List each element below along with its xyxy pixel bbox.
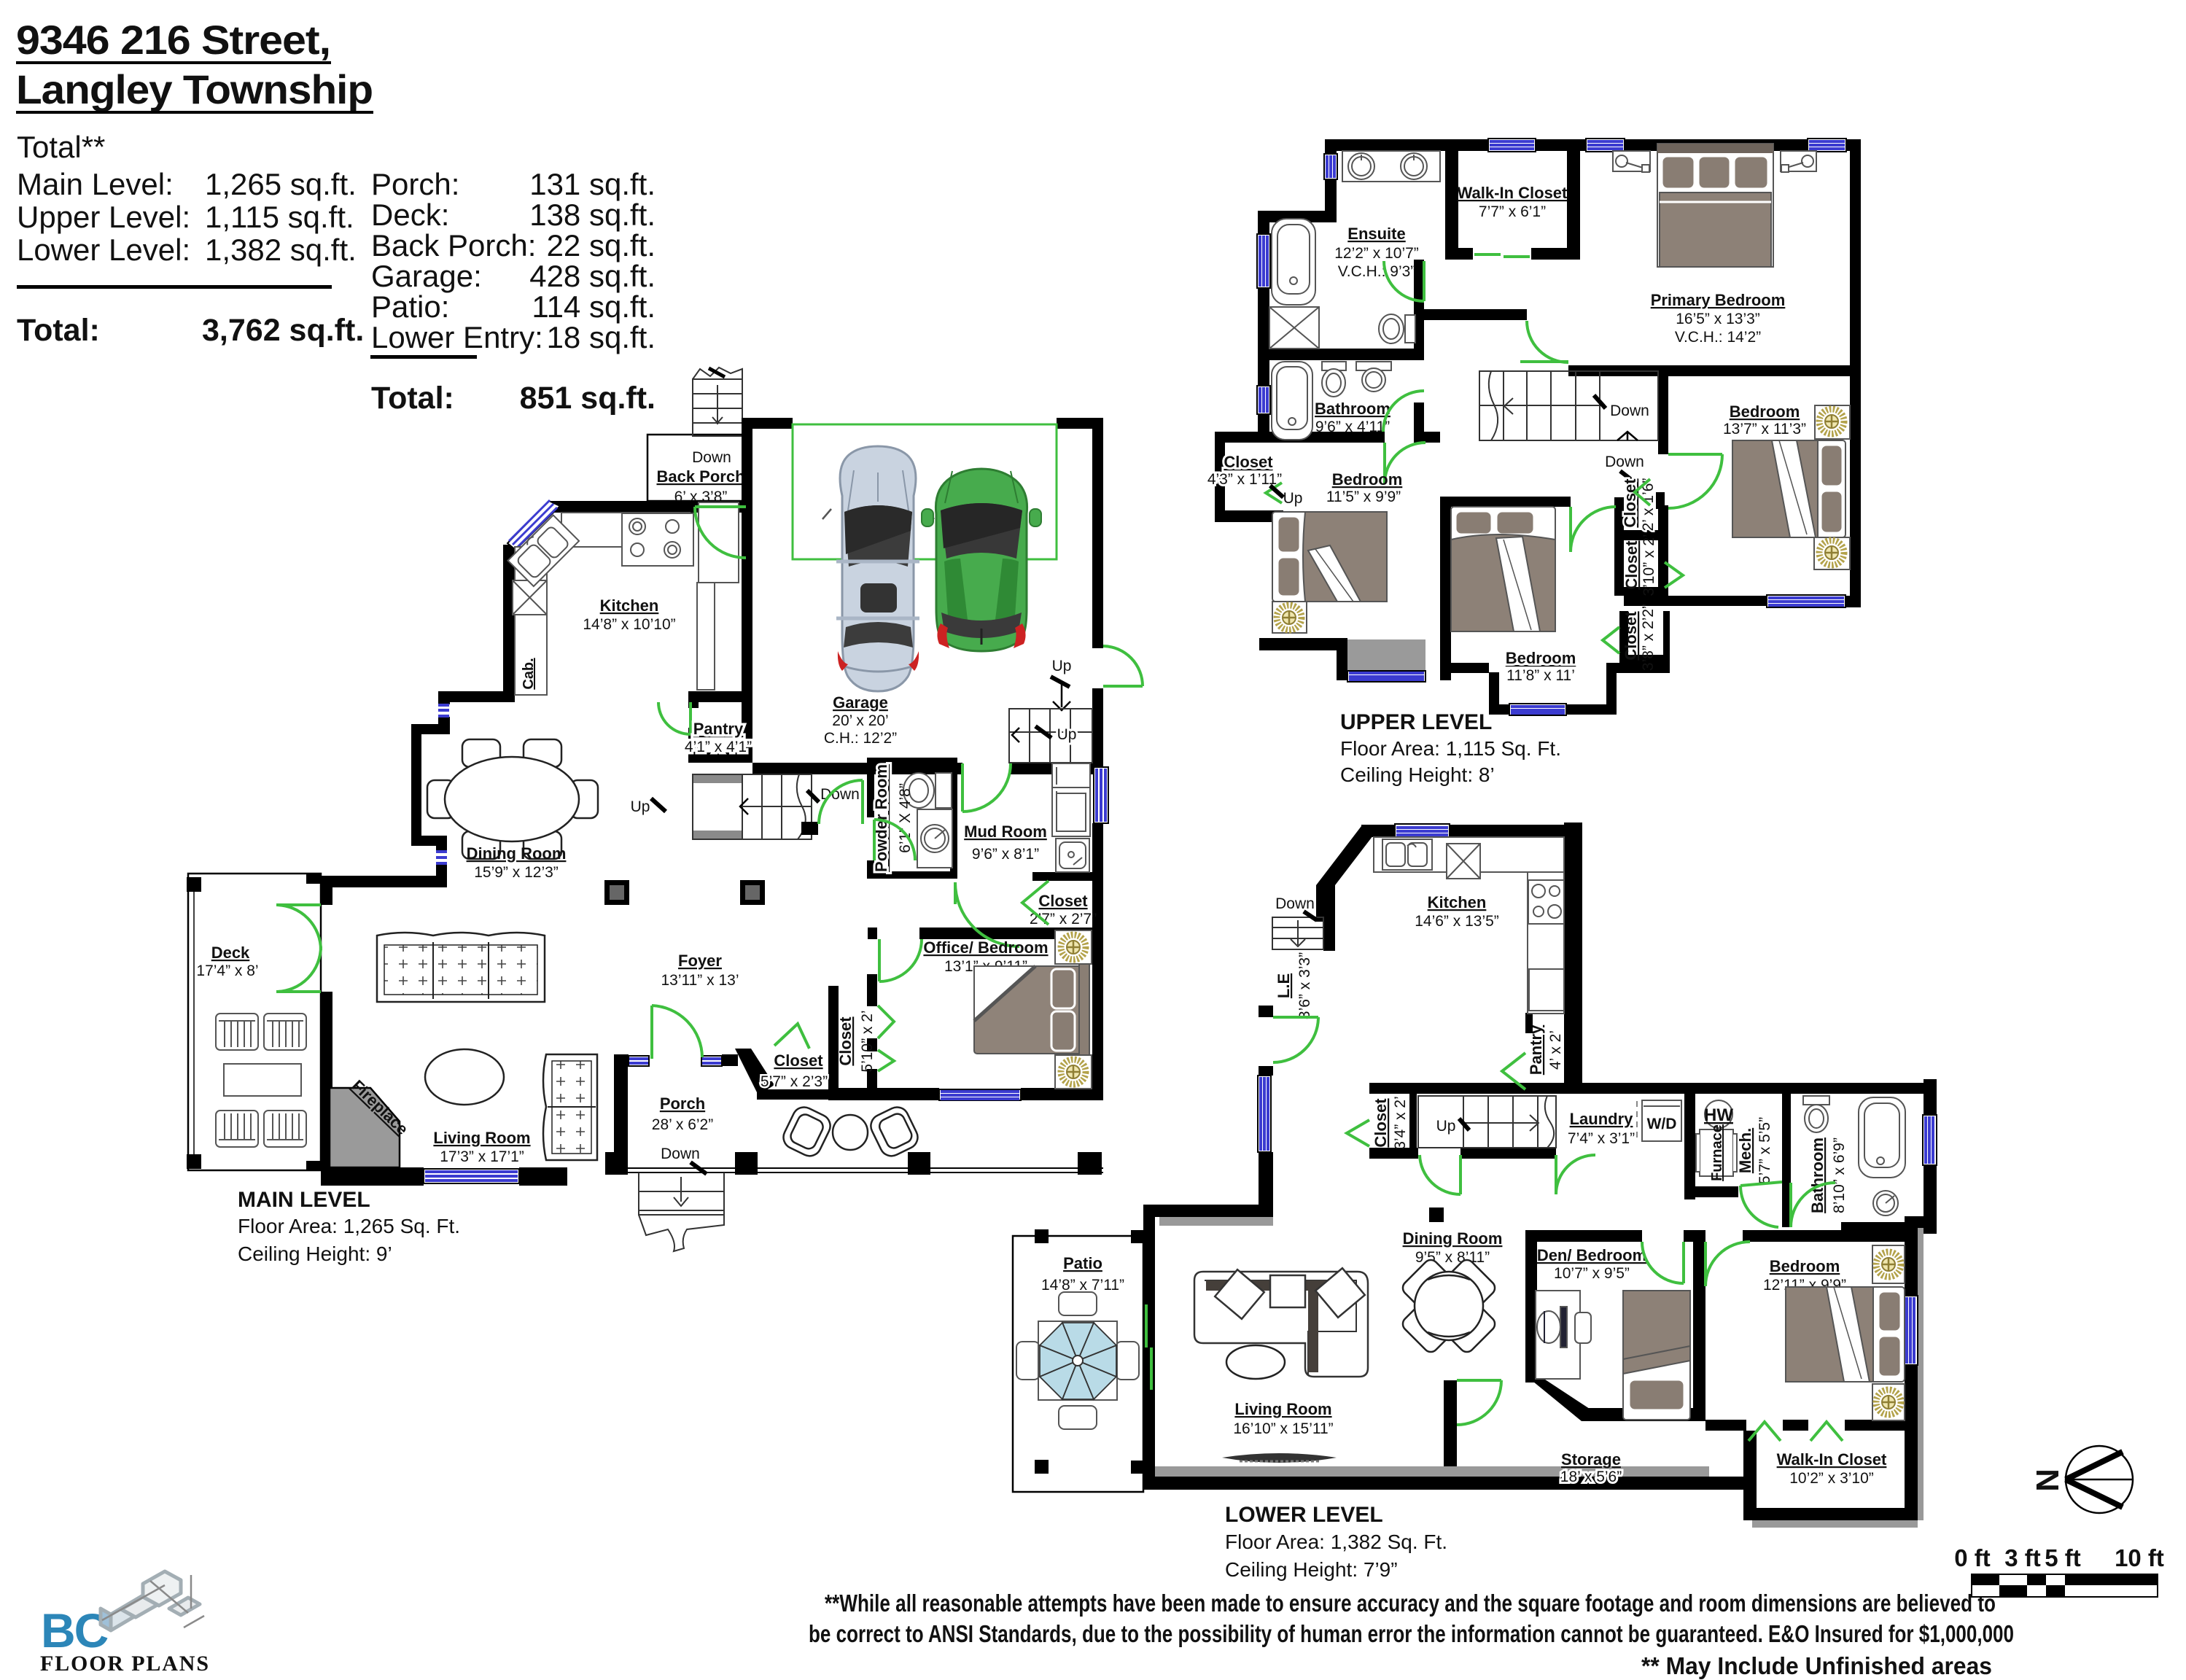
- svg-text:11’8” x 11’: 11’8” x 11’: [1506, 667, 1575, 684]
- svg-text:138 sq.ft.: 138 sq.ft.: [529, 198, 656, 232]
- svg-text:Porch: Porch: [660, 1094, 705, 1113]
- svg-text:Living Room: Living Room: [433, 1129, 530, 1147]
- svg-text:Ensuite: Ensuite: [1347, 225, 1405, 243]
- svg-text:428 sq.ft.: 428 sq.ft.: [529, 259, 656, 293]
- svg-text:**While all reasonable attempt: **While all reasonable attempts have bee…: [825, 1590, 1996, 1617]
- svg-text:Up: Up: [1057, 726, 1077, 743]
- svg-text:Kitchen: Kitchen: [600, 596, 659, 615]
- svg-text:11’5” x 9’9”: 11’5” x 9’9”: [1326, 489, 1401, 505]
- svg-text:10 ft: 10 ft: [2115, 1544, 2164, 1571]
- svg-text:114 sq.ft.: 114 sq.ft.: [532, 289, 656, 324]
- svg-text:Bedroom: Bedroom: [1730, 402, 1800, 421]
- svg-text:16’5” x 13’3”: 16’5” x 13’3”: [1676, 311, 1760, 327]
- svg-text:Deck: Deck: [211, 944, 250, 962]
- svg-text:Kitchen: Kitchen: [1428, 893, 1487, 911]
- svg-text:Langley Township: Langley Township: [16, 66, 373, 112]
- svg-text:W/D: W/D: [1647, 1116, 1677, 1132]
- svg-text:Closet: Closet: [836, 1016, 855, 1066]
- svg-text:10’2” x 3’10”: 10’2” x 3’10”: [1789, 1470, 1874, 1487]
- svg-text:Main Level:: Main Level:: [17, 167, 174, 201]
- svg-text:Closet: Closet: [1622, 611, 1640, 661]
- svg-text:Pantry: Pantry: [693, 720, 744, 738]
- svg-text:Foyer: Foyer: [678, 952, 722, 970]
- svg-text:Patio:: Patio:: [371, 289, 449, 324]
- svg-text:Primary Bedroom: Primary Bedroom: [1651, 291, 1786, 309]
- svg-text:17’3” x 17’1”: 17’3” x 17’1”: [440, 1148, 524, 1165]
- svg-text:Ceiling Height: 7’9”: Ceiling Height: 7’9”: [1225, 1558, 1398, 1581]
- svg-text:Back Porch:: Back Porch:: [371, 228, 536, 262]
- svg-text:FLOOR PLANS: FLOOR PLANS: [40, 1652, 209, 1676]
- svg-text:Closet: Closet: [1622, 540, 1641, 590]
- svg-text:28’ x 6’2”: 28’ x 6’2”: [652, 1116, 713, 1133]
- svg-text:Porch:: Porch:: [371, 167, 459, 201]
- svg-text:131 sq.ft.: 131 sq.ft.: [529, 167, 656, 201]
- svg-text:14’8” x 7’11”: 14’8” x 7’11”: [1041, 1277, 1124, 1294]
- svg-text:Floor Area: 1,382 Sq. Ft.: Floor Area: 1,382 Sq. Ft.: [1225, 1531, 1447, 1553]
- svg-text:13’7” x 11’3”: 13’7” x 11’3”: [1723, 421, 1806, 437]
- svg-text:Upper Level:: Upper Level:: [17, 200, 190, 234]
- svg-text:16’10” x 15’11”: 16’10” x 15’11”: [1233, 1420, 1333, 1437]
- svg-text:8’10” x 6’9”: 8’10” x 6’9”: [1831, 1137, 1848, 1213]
- svg-text:Closet: Closet: [1621, 478, 1639, 528]
- svg-text:Bathroom: Bathroom: [1808, 1137, 1827, 1213]
- svg-text:V.C.H.: 14’2”: V.C.H.: 14’2”: [1675, 329, 1761, 346]
- svg-text:5’7” x 5’5”: 5’7” x 5’5”: [1757, 1117, 1773, 1184]
- svg-text:C.H.: 12’2”: C.H.: 12’2”: [824, 730, 897, 747]
- svg-text:18’ x 5’6”: 18’ x 5’6”: [1560, 1469, 1622, 1485]
- svg-text:L.E: L.E: [1275, 973, 1293, 998]
- svg-text:3’6” x 3’3”: 3’6” x 3’3”: [1296, 952, 1313, 1019]
- svg-text:14’6” x 13’5”: 14’6” x 13’5”: [1415, 913, 1499, 930]
- svg-text:Pantry: Pantry: [1527, 1024, 1545, 1075]
- svg-text:be correct to ANSI Standards,: be correct to ANSI Standards, due to the…: [809, 1620, 2014, 1647]
- svg-text:Walk-In Closet: Walk-In Closet: [1777, 1450, 1887, 1469]
- svg-text:2’7” x 2’7”: 2’7” x 2’7”: [1030, 911, 1097, 927]
- svg-text:9346 216 Street,: 9346 216 Street,: [16, 17, 330, 63]
- svg-text:Closet: Closet: [1038, 892, 1088, 910]
- svg-text:Garage:: Garage:: [371, 259, 482, 293]
- svg-text:Back Porch: Back Porch: [656, 467, 744, 486]
- svg-text:Walk-In Closet: Walk-In Closet: [1458, 184, 1568, 202]
- svg-text:Down: Down: [1610, 402, 1649, 419]
- svg-text:3’10” x 2’: 3’10” x 2’: [1641, 534, 1657, 596]
- svg-text:Dining Room: Dining Room: [1403, 1229, 1503, 1248]
- svg-text:3,762 sq.ft.: 3,762 sq.ft.: [202, 313, 364, 348]
- svg-text:0 ft: 0 ft: [1954, 1544, 1991, 1571]
- svg-text:Down: Down: [692, 449, 731, 466]
- svg-text:Furnace: Furnace: [1709, 1124, 1725, 1181]
- svg-text:Dining Room: Dining Room: [467, 844, 567, 863]
- svg-text:BC: BC: [41, 1603, 108, 1657]
- svg-text:Down: Down: [661, 1146, 700, 1162]
- svg-text:Up: Up: [1283, 490, 1303, 507]
- svg-text:Deck:: Deck:: [371, 198, 449, 232]
- svg-text:Down: Down: [1275, 895, 1315, 912]
- svg-text:** May Include Unfinished area: ** May Include Unfinished areas: [1641, 1652, 1992, 1679]
- svg-text:Ceiling Height: 8’: Ceiling Height: 8’: [1340, 763, 1495, 786]
- svg-text:Garage: Garage: [833, 693, 888, 712]
- svg-text:5’10” x 2’: 5’10” x 2’: [859, 1010, 876, 1072]
- svg-text:5 ft: 5 ft: [2045, 1544, 2081, 1571]
- svg-text:Laundry: Laundry: [1570, 1110, 1634, 1128]
- svg-text:V.C.H.: 9’3”: V.C.H.: 9’3”: [1338, 263, 1416, 280]
- svg-text:Total:: Total:: [17, 313, 100, 348]
- svg-text:7’7” x 6’1”: 7’7” x 6’1”: [1479, 203, 1546, 220]
- svg-text:Office/ Bedroom: Office/ Bedroom: [923, 938, 1048, 957]
- svg-text:Closet: Closet: [1372, 1098, 1390, 1148]
- svg-text:Mech.: Mech.: [1736, 1128, 1754, 1173]
- svg-text:1,115 sq.ft.: 1,115 sq.ft.: [205, 200, 354, 234]
- svg-text:Cab.: Cab.: [521, 658, 537, 689]
- svg-text:Closet: Closet: [1224, 453, 1273, 471]
- svg-text:4’ x 2’: 4’ x 2’: [1547, 1030, 1564, 1070]
- svg-text:Living Room: Living Room: [1234, 1400, 1331, 1418]
- svg-text:Bedroom: Bedroom: [1332, 470, 1403, 489]
- svg-text:Bedroom: Bedroom: [1770, 1257, 1840, 1275]
- svg-text:Up: Up: [631, 798, 650, 815]
- svg-text:20’ x 20’: 20’ x 20’: [832, 712, 888, 729]
- svg-text:Mud Room: Mud Room: [964, 822, 1047, 841]
- svg-text:4’1” x 4’1”: 4’1” x 4’1”: [685, 739, 752, 755]
- svg-text:UPPER LEVEL: UPPER LEVEL: [1340, 710, 1492, 734]
- svg-text:1,382 sq.ft.: 1,382 sq.ft.: [205, 233, 357, 267]
- svg-text:Up: Up: [1436, 1118, 1456, 1135]
- svg-text:MAIN LEVEL: MAIN LEVEL: [238, 1188, 370, 1212]
- svg-text:12’2” x 10’7”: 12’2” x 10’7”: [1334, 245, 1419, 262]
- svg-text:851 sq.ft.: 851 sq.ft.: [520, 381, 656, 416]
- svg-text:10’7” x 9’5”: 10’7” x 9’5”: [1554, 1265, 1630, 1282]
- svg-text:Lower Entry:: Lower Entry:: [371, 320, 543, 354]
- svg-text:3’8” x 2’2”: 3’8” x 2’2”: [1640, 604, 1657, 671]
- svg-text:HW: HW: [1704, 1105, 1733, 1125]
- svg-text:3 ft: 3 ft: [2004, 1544, 2041, 1571]
- svg-text:Down: Down: [1605, 454, 1644, 470]
- svg-text:LOWER LEVEL: LOWER LEVEL: [1225, 1503, 1383, 1527]
- svg-text:17’4” x 8’: 17’4” x 8’: [196, 962, 258, 979]
- svg-text:Den/ Bedroom: Den/ Bedroom: [1537, 1246, 1646, 1264]
- svg-text:1,265 sq.ft.: 1,265 sq.ft.: [205, 167, 357, 201]
- svg-text:18 sq.ft.: 18 sq.ft.: [547, 320, 656, 354]
- svg-text:13’11” x 13’: 13’11” x 13’: [661, 972, 739, 989]
- svg-text:Bedroom: Bedroom: [1506, 649, 1576, 667]
- svg-text:Floor Area: 1,265 Sq. Ft.: Floor Area: 1,265 Sq. Ft.: [238, 1215, 460, 1237]
- svg-text:14’8” x 10’10”: 14’8” x 10’10”: [583, 616, 675, 633]
- svg-text:15’9” x 12’3”: 15’9” x 12’3”: [474, 864, 559, 881]
- svg-text:Total**: Total**: [17, 130, 105, 164]
- svg-text:N: N: [2030, 1469, 2066, 1492]
- svg-text:7’4” x 3’1”: 7’4” x 3’1”: [1568, 1130, 1635, 1147]
- svg-text:Total:: Total:: [371, 381, 454, 416]
- svg-text:Ceiling Height: 9’: Ceiling Height: 9’: [238, 1242, 392, 1265]
- svg-text:Storage: Storage: [1561, 1450, 1621, 1469]
- svg-text:Lower Level:: Lower Level:: [17, 233, 190, 267]
- svg-text:5’7” x 2’3”: 5’7” x 2’3”: [761, 1073, 828, 1090]
- svg-text:22 sq.ft.: 22 sq.ft.: [547, 228, 656, 262]
- svg-text:Up: Up: [1052, 658, 1072, 674]
- svg-text:9’6” x 4’11”: 9’6” x 4’11”: [1315, 419, 1390, 435]
- svg-text:Bathroom: Bathroom: [1315, 400, 1390, 418]
- svg-text:Floor Area: 1,115 Sq. Ft.: Floor Area: 1,115 Sq. Ft.: [1340, 737, 1561, 760]
- svg-text:Closet: Closet: [774, 1051, 823, 1070]
- svg-text:Patio: Patio: [1063, 1254, 1102, 1272]
- svg-text:3’4” x 2’: 3’4” x 2’: [1392, 1096, 1409, 1150]
- svg-text:9’6” x 8’1”: 9’6” x 8’1”: [972, 846, 1039, 863]
